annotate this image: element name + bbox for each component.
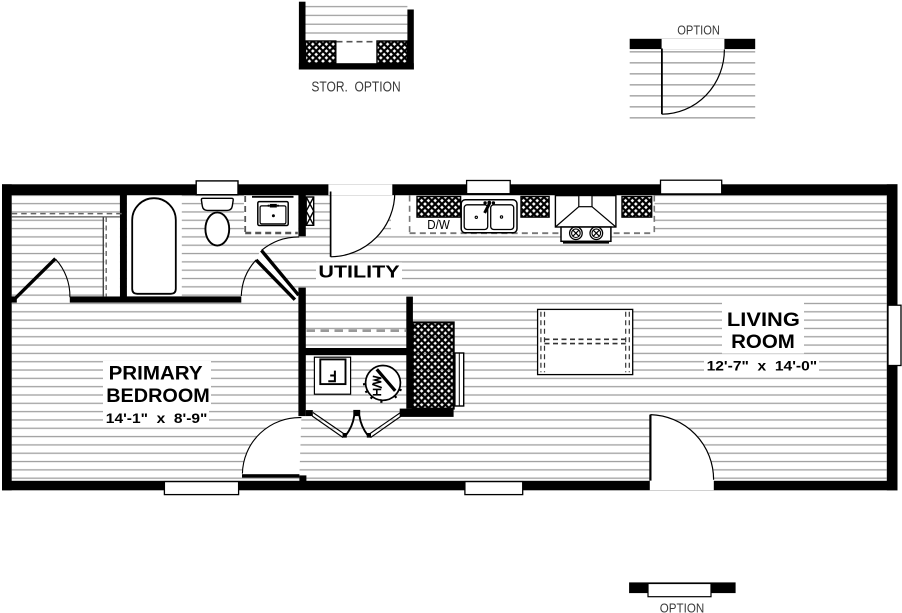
svg-text:14'-1" x 8'-9": 14'-1" x 8'-9" [106, 411, 208, 426]
svg-text:OPTION: OPTION [677, 23, 720, 38]
svg-text:STOR. OPTION: STOR. OPTION [311, 80, 400, 96]
svg-text:ROOM: ROOM [731, 332, 795, 353]
svg-text:D/W: D/W [427, 218, 450, 232]
svg-text:LIVING: LIVING [727, 310, 800, 331]
svg-text:UTILITY: UTILITY [318, 262, 400, 282]
svg-text:BEDROOM: BEDROOM [106, 386, 210, 407]
svg-text:PRIMARY: PRIMARY [109, 364, 203, 385]
svg-text:12'-7" x 14'-0": 12'-7" x 14'-0" [707, 359, 818, 374]
svg-text:OPTION: OPTION [660, 601, 705, 613]
